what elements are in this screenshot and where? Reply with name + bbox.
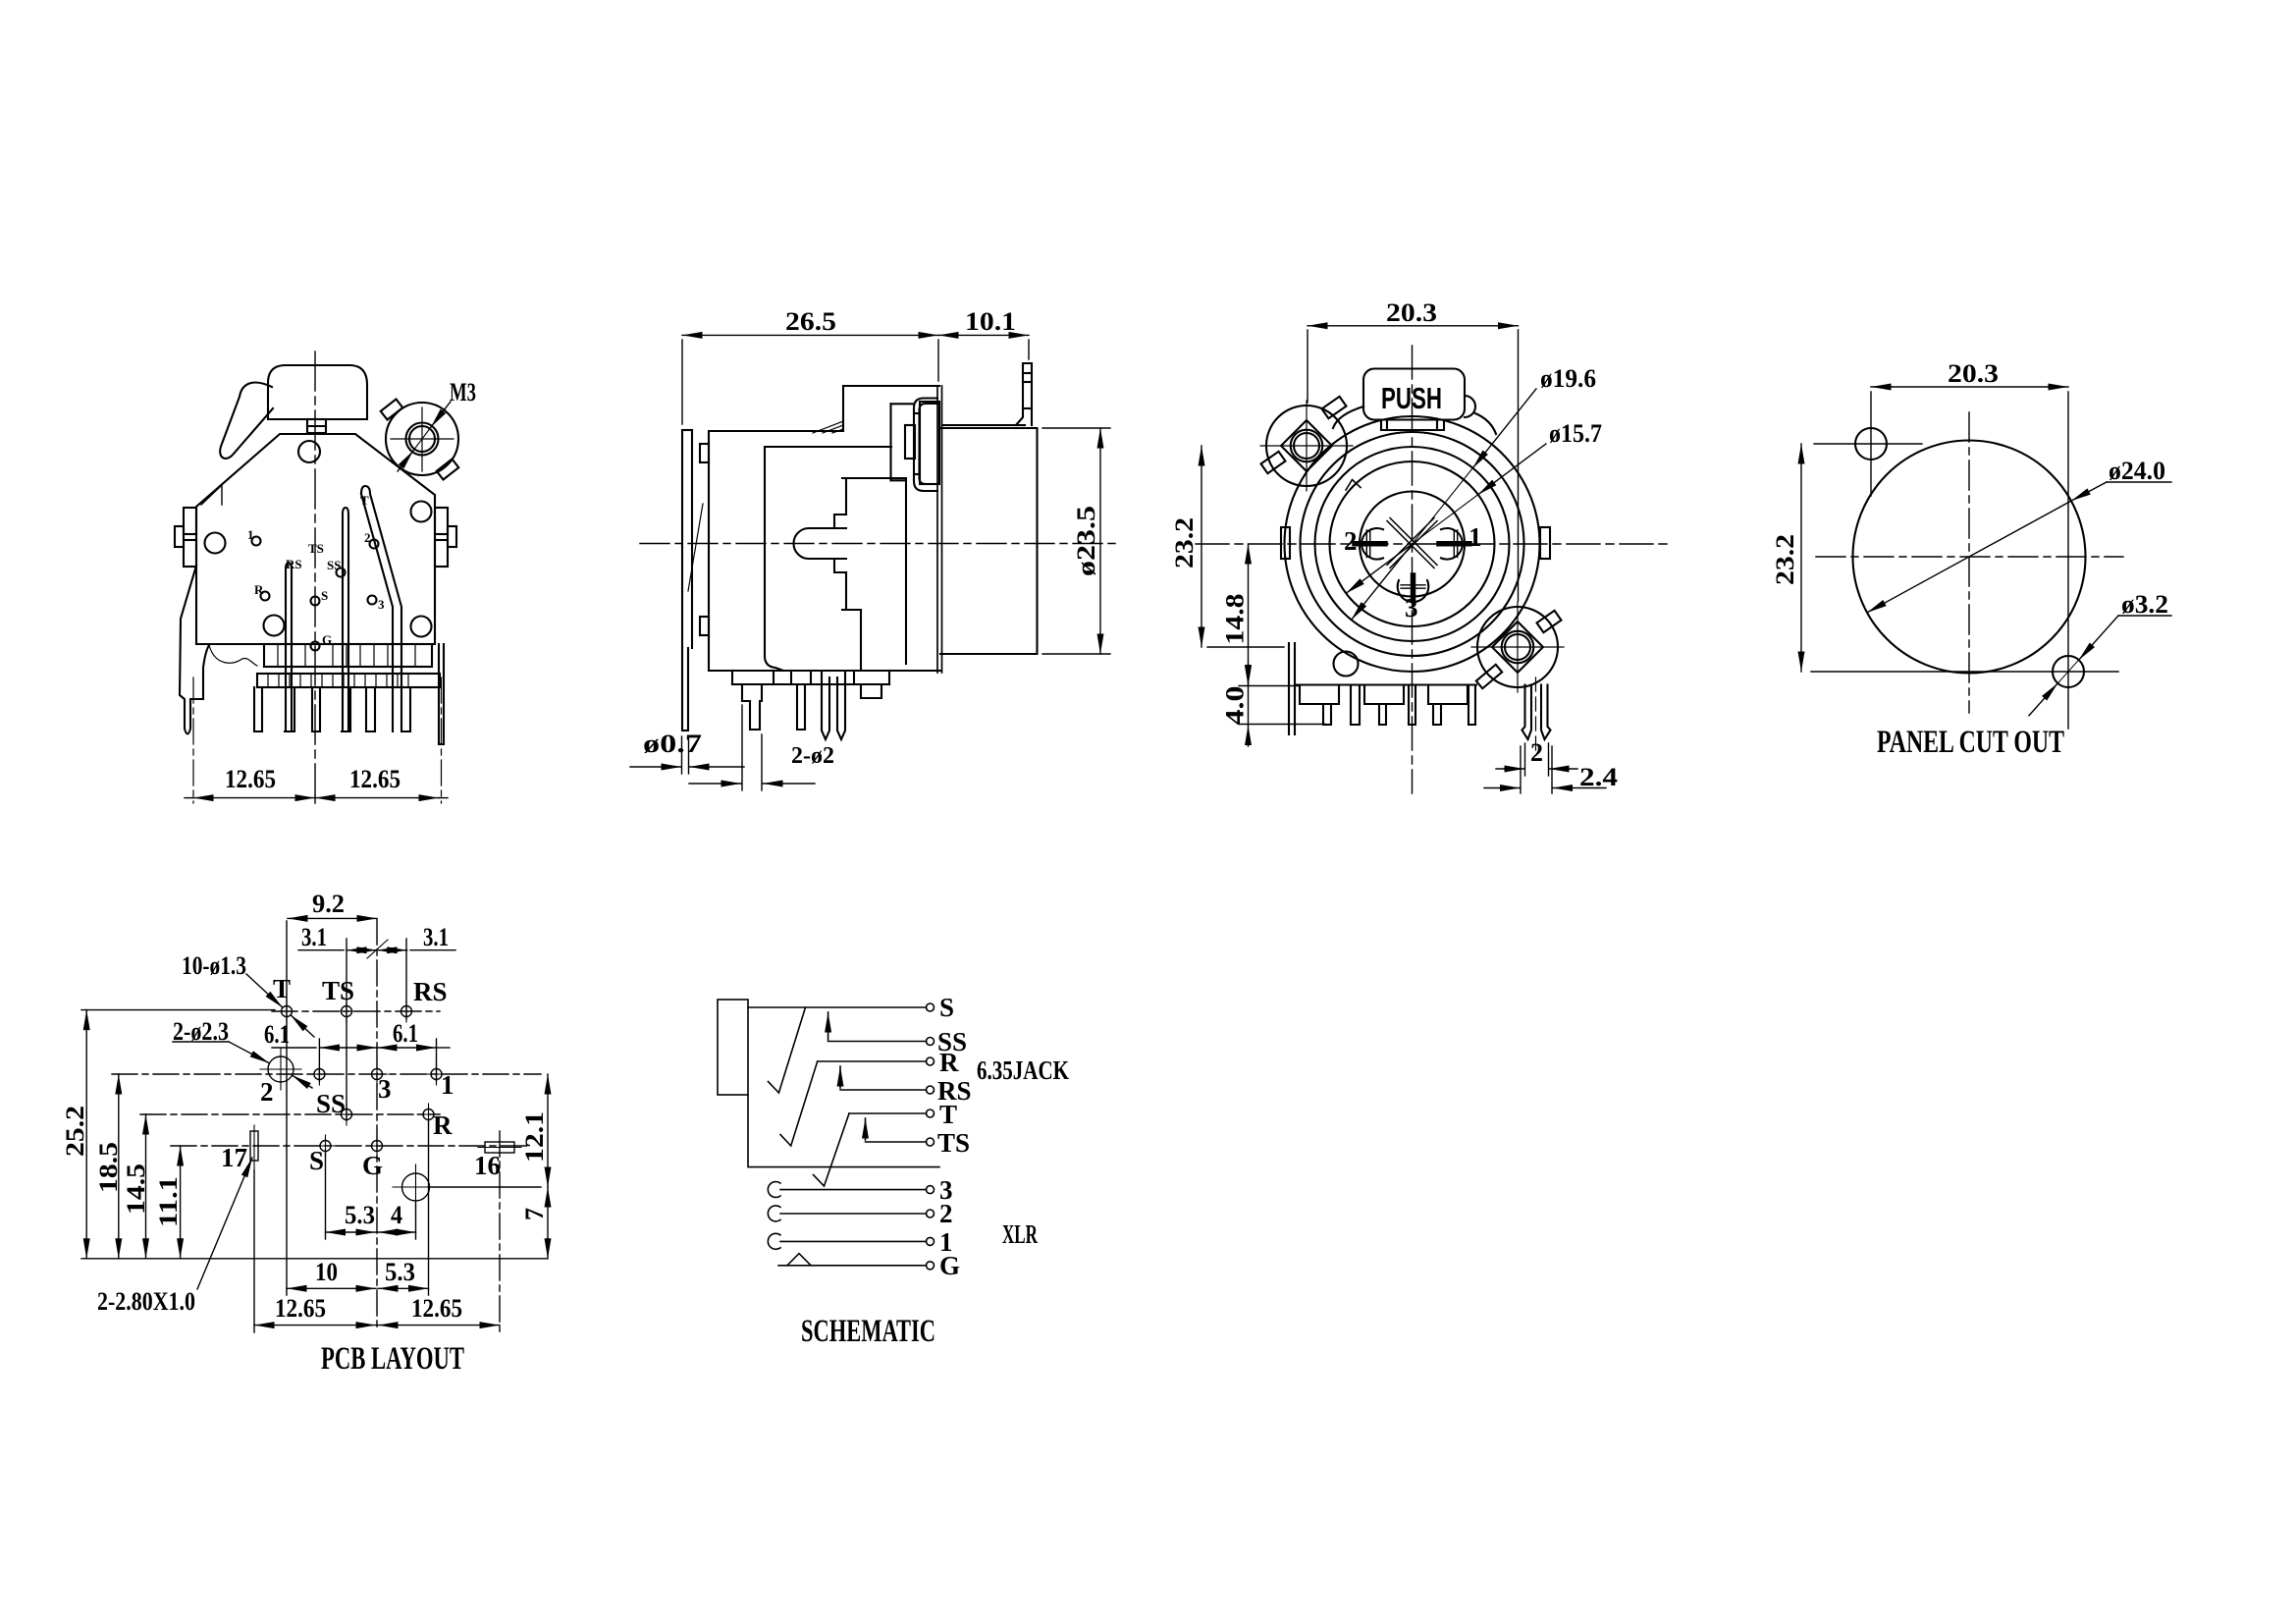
svg-text:PCB LAYOUT: PCB LAYOUT — [321, 1341, 464, 1377]
svg-text:6.35JACK: 6.35JACK — [977, 1056, 1069, 1085]
svg-text:T: T — [273, 974, 291, 1003]
svg-text:ø0.7: ø0.7 — [643, 730, 702, 758]
svg-text:12.65: 12.65 — [411, 1294, 462, 1323]
svg-text:ø24.0: ø24.0 — [2109, 457, 2165, 485]
svg-text:S: S — [309, 1146, 324, 1175]
svg-text:3: 3 — [378, 597, 385, 612]
svg-text:R: R — [254, 582, 264, 597]
svg-text:5.3: 5.3 — [385, 1258, 415, 1286]
svg-text:RS: RS — [286, 557, 302, 571]
svg-text:12.65: 12.65 — [349, 765, 400, 793]
svg-text:2: 2 — [364, 530, 371, 545]
svg-text:SS: SS — [316, 1089, 346, 1118]
svg-text:2: 2 — [1344, 526, 1358, 556]
svg-text:7: 7 — [520, 1208, 549, 1220]
svg-text:G: G — [939, 1251, 960, 1280]
svg-text:3: 3 — [1405, 593, 1418, 623]
svg-text:R: R — [433, 1110, 453, 1140]
svg-text:12.65: 12.65 — [275, 1294, 326, 1323]
svg-text:XLR: XLR — [1002, 1219, 1038, 1249]
svg-text:14.5: 14.5 — [122, 1164, 150, 1215]
svg-text:RS: RS — [413, 977, 448, 1006]
svg-text:TS: TS — [308, 541, 324, 556]
svg-text:18.5: 18.5 — [94, 1142, 123, 1193]
svg-text:G: G — [362, 1151, 383, 1180]
svg-text:1: 1 — [1468, 522, 1482, 552]
svg-text:12.65: 12.65 — [225, 765, 276, 793]
svg-text:2: 2 — [1530, 738, 1543, 767]
svg-text:S: S — [939, 993, 954, 1022]
svg-text:10-ø1.3: 10-ø1.3 — [182, 951, 246, 980]
svg-text:3: 3 — [378, 1074, 392, 1104]
svg-text:TS: TS — [937, 1128, 970, 1158]
svg-text:2: 2 — [260, 1077, 274, 1107]
svg-text:25.2: 25.2 — [61, 1106, 89, 1157]
svg-text:4: 4 — [391, 1201, 402, 1229]
svg-text:20.3: 20.3 — [1948, 359, 1999, 388]
svg-text:4.0: 4.0 — [1221, 686, 1250, 726]
svg-text:6.1: 6.1 — [393, 1019, 418, 1048]
svg-text:3.1: 3.1 — [301, 923, 327, 951]
svg-text:2-ø2.3: 2-ø2.3 — [173, 1017, 229, 1046]
svg-text:ø19.6: ø19.6 — [1540, 364, 1596, 393]
svg-text:ø15.7: ø15.7 — [1549, 419, 1602, 448]
svg-text:ø3.2: ø3.2 — [2121, 590, 2168, 619]
svg-text:2-ø2: 2-ø2 — [791, 743, 834, 769]
svg-text:11.1: 11.1 — [154, 1176, 183, 1227]
svg-text:T: T — [939, 1100, 957, 1129]
svg-text:1: 1 — [247, 527, 254, 542]
svg-text:R: R — [939, 1048, 959, 1077]
svg-text:10: 10 — [315, 1258, 338, 1286]
svg-text:2.4: 2.4 — [1579, 763, 1618, 791]
svg-text:SCHEMATIC: SCHEMATIC — [801, 1314, 935, 1349]
svg-text:1: 1 — [441, 1070, 454, 1100]
svg-text:9.2: 9.2 — [312, 890, 345, 918]
svg-text:SS: SS — [327, 558, 341, 572]
svg-text:5.3: 5.3 — [345, 1201, 375, 1229]
svg-text:26.5: 26.5 — [785, 307, 836, 336]
svg-text:17: 17 — [221, 1143, 247, 1172]
svg-text:14.8: 14.8 — [1221, 594, 1250, 645]
svg-text:S: S — [321, 588, 328, 603]
svg-text:TS: TS — [322, 976, 354, 1005]
svg-text:23.2: 23.2 — [1771, 534, 1799, 585]
svg-text:2-2.80X1.0: 2-2.80X1.0 — [97, 1287, 195, 1316]
svg-text:PUSH: PUSH — [1381, 381, 1442, 415]
svg-text:2: 2 — [939, 1199, 953, 1228]
svg-text:6.1: 6.1 — [264, 1020, 290, 1049]
svg-text:M3: M3 — [450, 378, 476, 406]
svg-text:3.1: 3.1 — [423, 923, 449, 951]
svg-text:12.1: 12.1 — [520, 1111, 549, 1163]
svg-text:PANEL CUT OUT: PANEL CUT OUT — [1877, 725, 2064, 760]
svg-text:23.2: 23.2 — [1170, 517, 1199, 568]
svg-text:10.1: 10.1 — [965, 307, 1016, 336]
svg-text:16: 16 — [474, 1151, 501, 1180]
svg-text:20.3: 20.3 — [1386, 298, 1437, 327]
svg-text:ø23.5: ø23.5 — [1072, 506, 1100, 576]
